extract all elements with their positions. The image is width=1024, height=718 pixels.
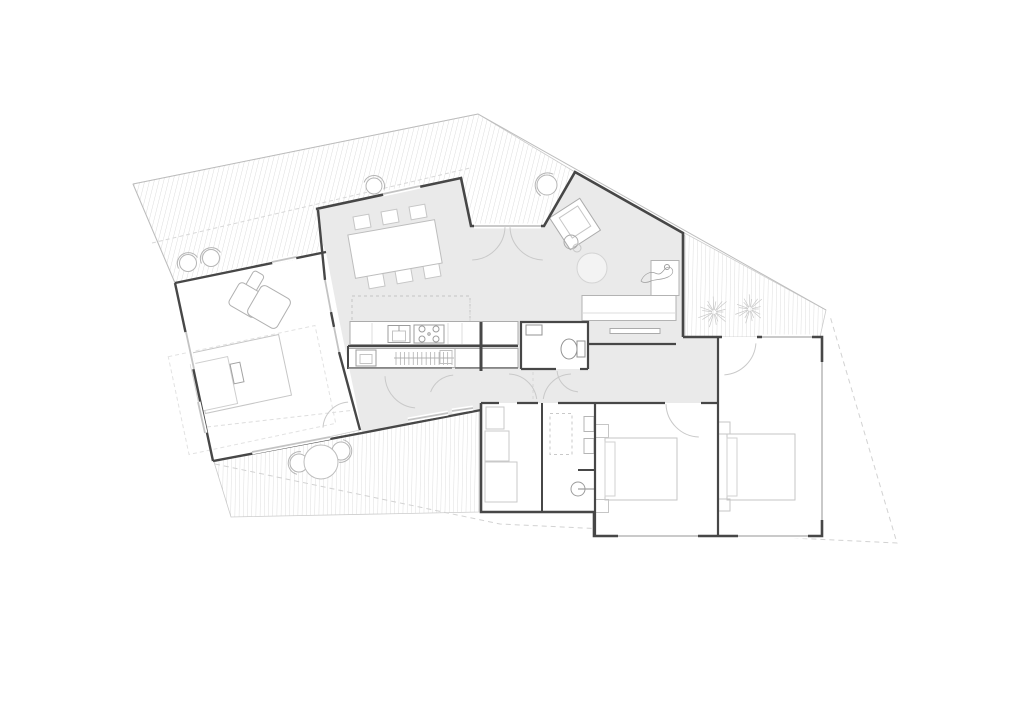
dining-chair	[409, 204, 427, 220]
dining-chair	[381, 209, 399, 225]
dining-chair	[353, 214, 371, 230]
terrace-table	[304, 445, 338, 479]
sofa-chaise	[582, 296, 676, 321]
bed-middle	[605, 438, 677, 500]
round-rug	[577, 253, 607, 283]
tv-sideboard	[610, 329, 660, 334]
floor-plan-canvas	[0, 0, 1024, 718]
floor-plan-drawing	[133, 114, 897, 543]
hob	[414, 325, 444, 343]
wc-floor	[521, 322, 588, 369]
page	[0, 0, 1024, 718]
